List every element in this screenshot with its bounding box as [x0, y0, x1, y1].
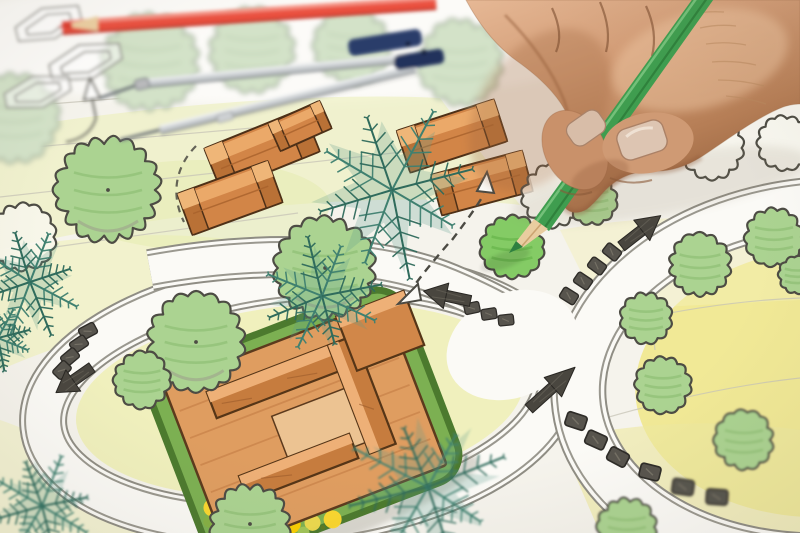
scene-svg [0, 0, 800, 533]
vignette [0, 0, 800, 533]
photo-landscape-plan [0, 0, 800, 533]
